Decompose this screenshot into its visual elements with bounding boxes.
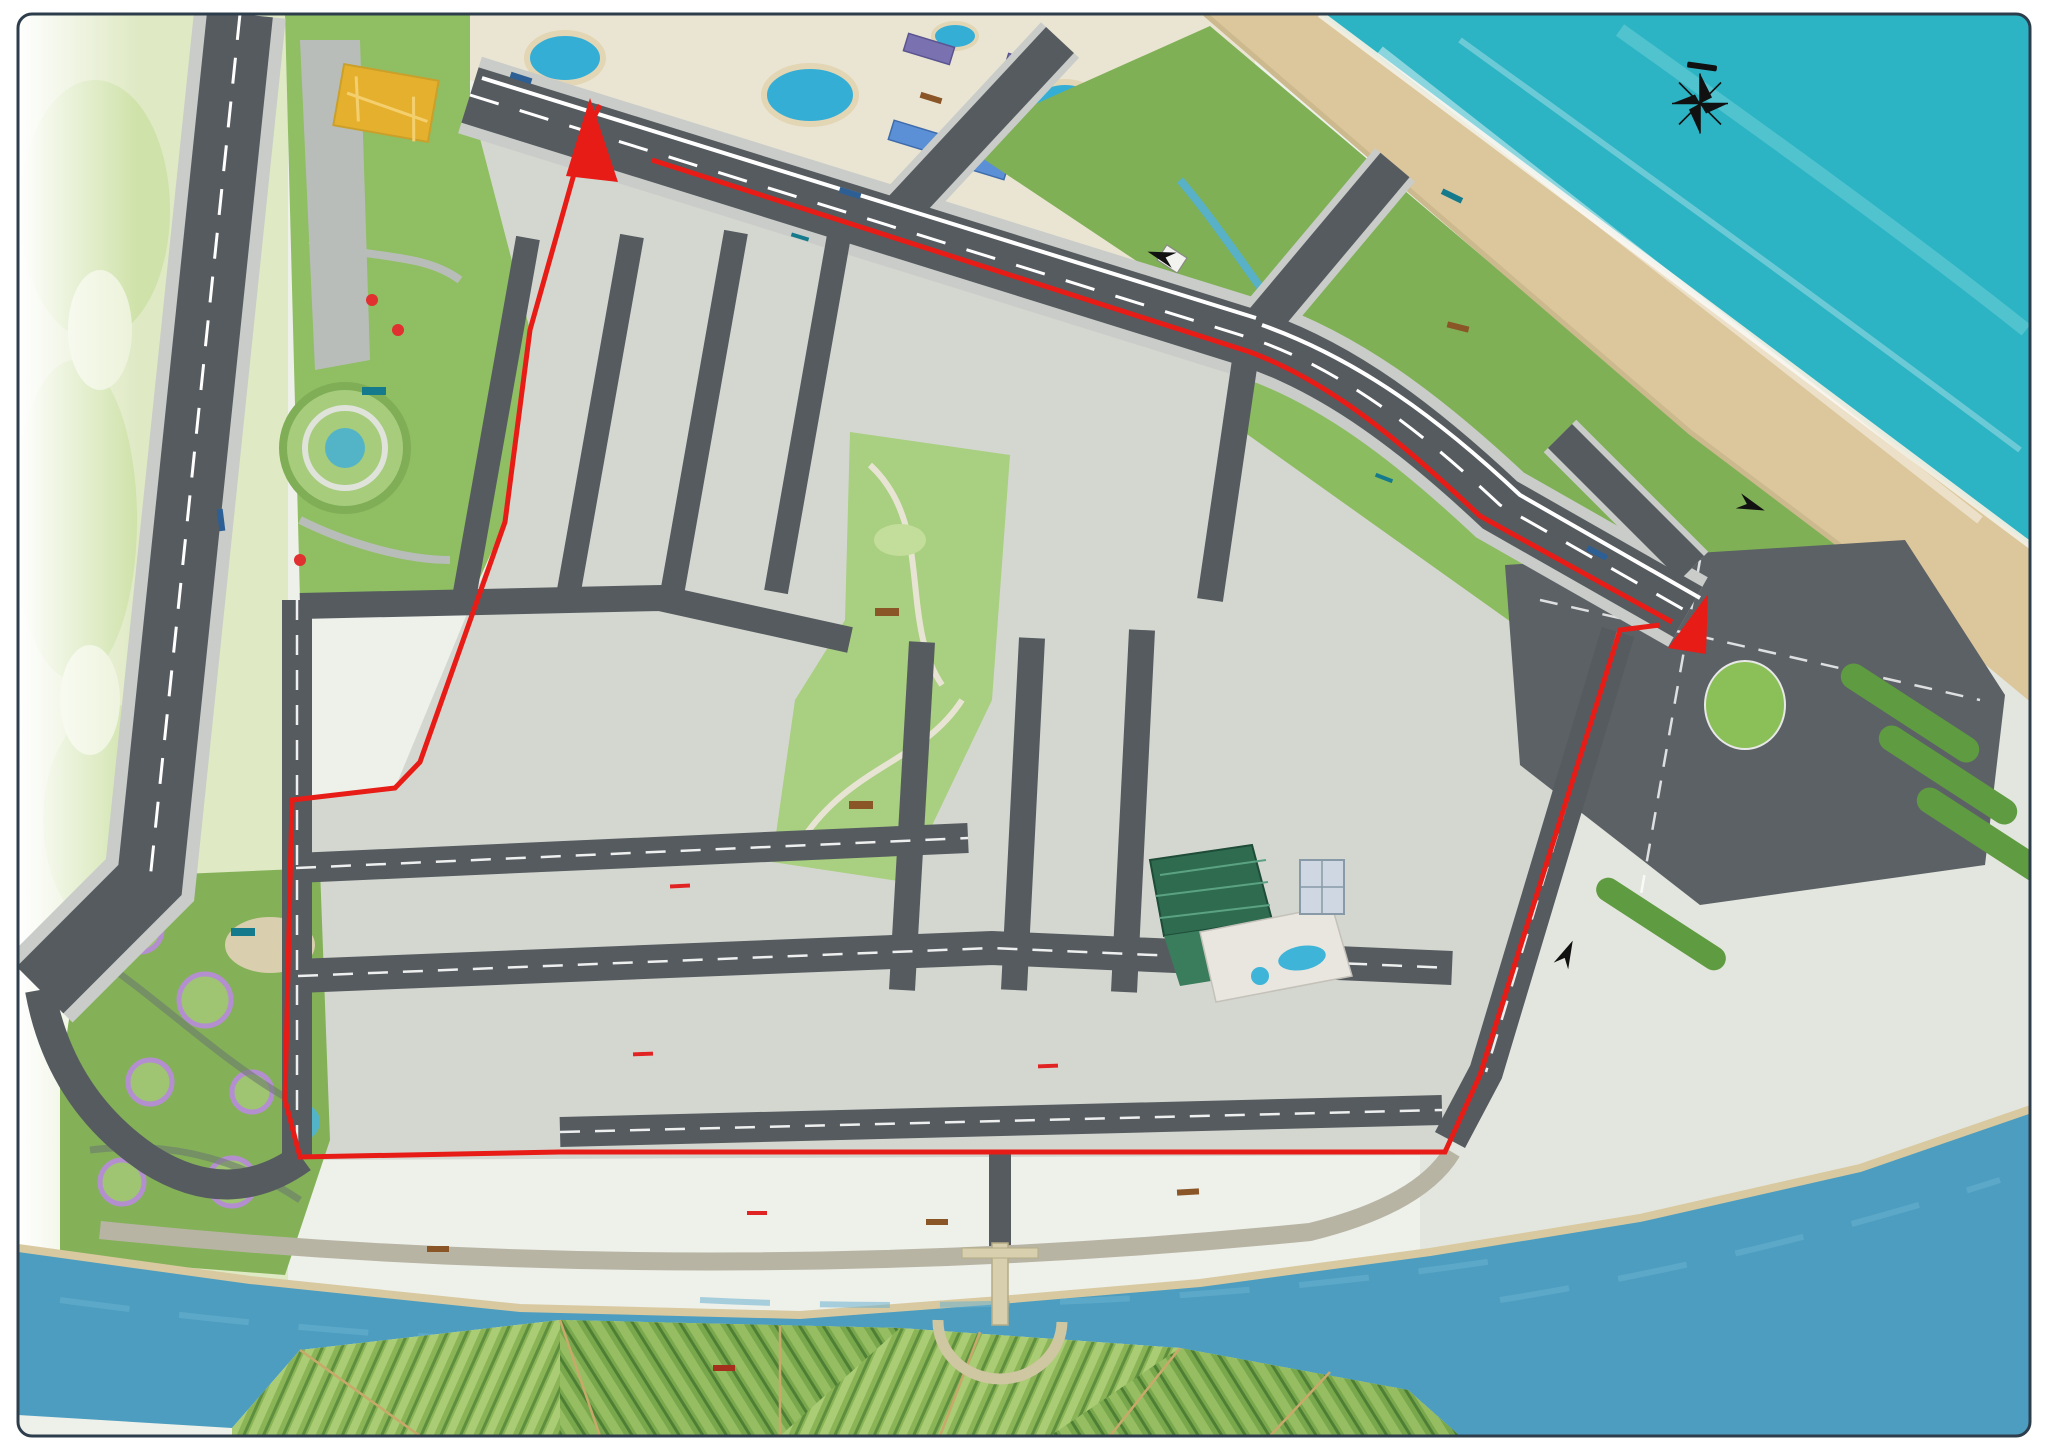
label-tra-que-village	[713, 1365, 735, 1371]
label-zone-rv-01	[747, 1211, 767, 1215]
compass-icon	[1667, 62, 1733, 145]
label-riverside-park-west	[427, 1246, 449, 1252]
label-zone-rv-03	[633, 1052, 653, 1057]
label-central-square-upper	[362, 387, 386, 395]
label-internal-park-2	[849, 801, 873, 809]
label-riverside-park-east	[1177, 1188, 1199, 1195]
master-plan-map: const data = JSON.parse(document.getElem…	[0, 0, 2048, 1449]
label-zone-rv-02	[1038, 1064, 1058, 1069]
label-central-square-lower	[231, 928, 255, 936]
label-marina	[926, 1219, 948, 1225]
clubhouse-complex	[1150, 845, 1352, 1002]
site-plan-canvas	[0, 0, 2048, 1449]
label-internal-park-1	[875, 608, 899, 616]
